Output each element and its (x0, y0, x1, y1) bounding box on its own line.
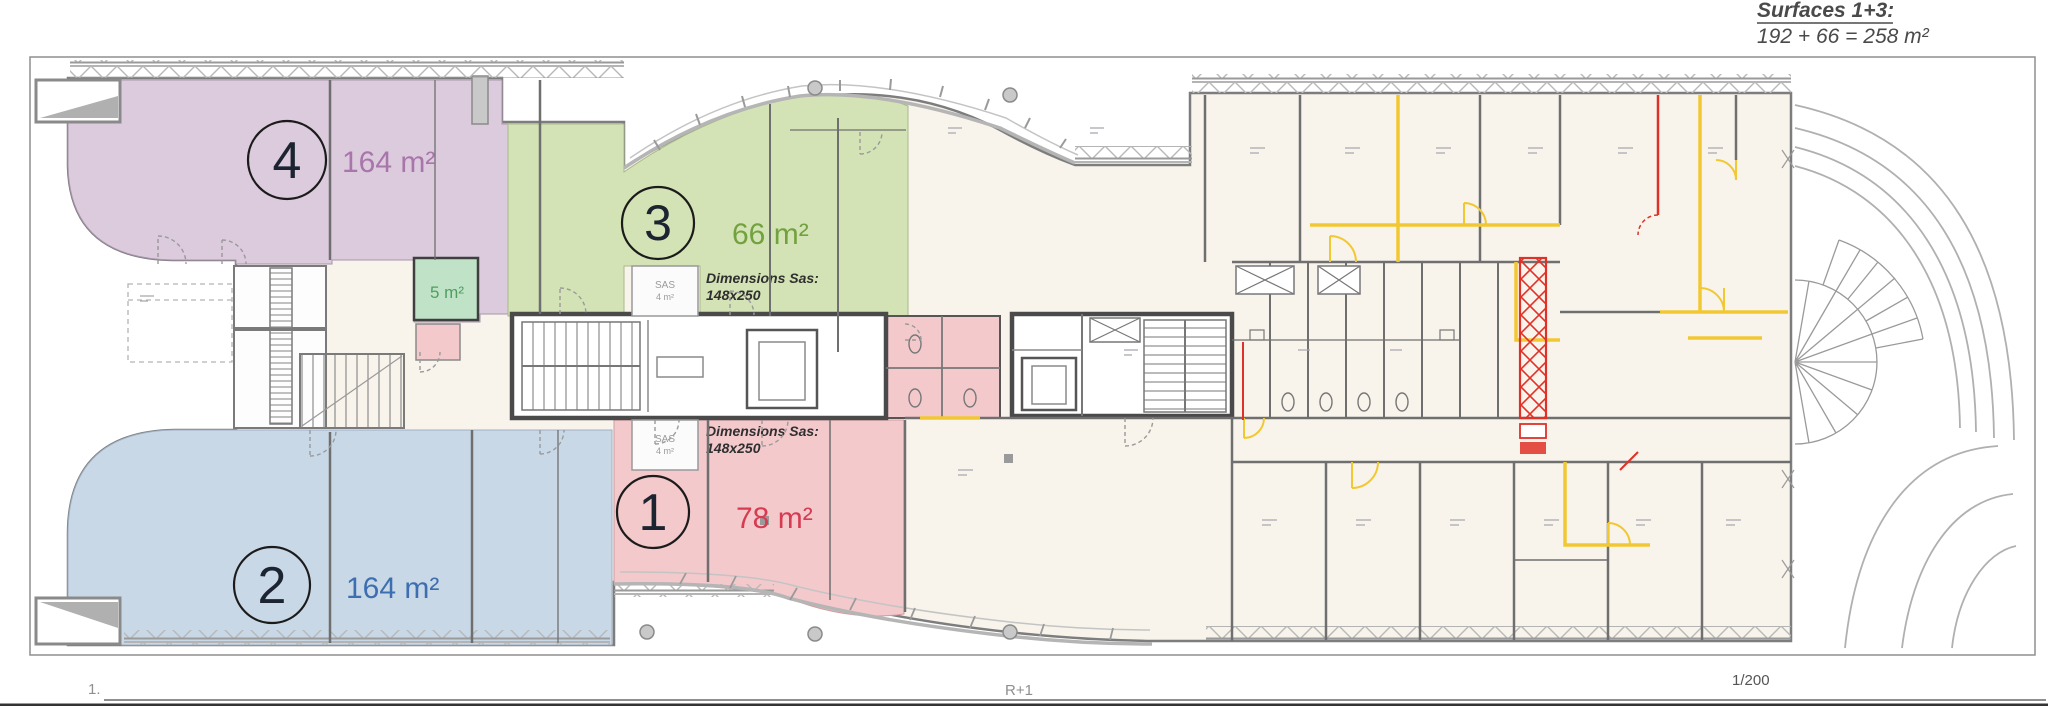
truss-top-right (1192, 74, 1791, 93)
fan-stair-treads (1823, 240, 1923, 348)
ramp-arcs (1795, 105, 2016, 648)
zone-number: 4 (273, 132, 302, 190)
core-a (512, 314, 886, 418)
surfaces-title: Surfaces 1+3: (1757, 0, 1894, 22)
sas-box-lower (632, 420, 698, 470)
louver-shaft (270, 268, 292, 424)
floor-plan-sheet: SAS 4 m² SAS 4 m² Dimensions Sas: 148x25… (0, 0, 2048, 707)
surfaces-formula: 192 + 66 = 258 m² (1757, 25, 1930, 48)
truss-bottom-left (124, 630, 610, 645)
truss-top-left (70, 60, 624, 78)
truss-top-step (1075, 146, 1192, 163)
footer: 1. R+1 1/200 (0, 672, 2048, 706)
sas-note-value: 148x250 (706, 440, 761, 456)
column-circle (1003, 625, 1017, 639)
x-box (1318, 266, 1360, 294)
facade-pillar (472, 76, 488, 124)
sas-note-value: 148x250 (706, 287, 761, 303)
zone-2-area (68, 430, 612, 645)
x-box (1236, 266, 1294, 294)
ramp-arc (1902, 494, 2013, 648)
zone-1-small-room (416, 324, 460, 360)
zone-area-label: 164 m² (346, 572, 439, 605)
column-circle (1003, 88, 1017, 102)
core-a-duct (657, 357, 703, 377)
ramp-arc (1952, 546, 2016, 648)
zone-area-label: 164 m² (342, 146, 435, 179)
column-circle (808, 627, 822, 641)
floor-plan-drawing: SAS 4 m² SAS 4 m² Dimensions Sas: 148x25… (0, 0, 2048, 707)
header-annotation: Surfaces 1+3: 192 + 66 = 258 m² (1757, 0, 1930, 48)
sas-box-upper (632, 266, 698, 316)
sheet-number: 1. (88, 681, 101, 698)
zone-number: 3 (644, 195, 672, 251)
level-label: R+1 (1005, 682, 1033, 699)
red-box (1520, 424, 1546, 438)
sas-area-label: 4 m² (656, 446, 674, 456)
fan-stair (1795, 240, 1923, 444)
x-box (1090, 318, 1140, 342)
sas-label: SAS (655, 280, 675, 291)
hall-column (1004, 454, 1013, 463)
ramp-arc (1795, 166, 1960, 428)
red-shaft (1520, 258, 1546, 418)
zone-number: 2 (258, 557, 287, 615)
zone-1-wc-area (886, 316, 1000, 418)
fan-stair-radials (1795, 281, 1877, 443)
closet-area-label: 5 m² (430, 283, 464, 302)
zone-area-label: 78 m² (736, 502, 813, 535)
sas-note-title: Dimensions Sas: (706, 270, 819, 286)
ramp-arc (1795, 128, 1994, 438)
column-circle (640, 625, 654, 639)
scale-label: 1/200 (1732, 672, 1770, 689)
column-circle (808, 81, 822, 95)
sas-area-label: 4 m² (656, 292, 674, 302)
sheet-bottom-edge (0, 704, 2048, 707)
ramp-arc (1845, 446, 1998, 648)
ramp-arc (1795, 147, 1976, 432)
zone-area-label: 66 m² (732, 218, 809, 251)
right-exterior (1782, 105, 2016, 648)
red-box (1520, 442, 1546, 454)
zone-number: 1 (639, 484, 668, 542)
